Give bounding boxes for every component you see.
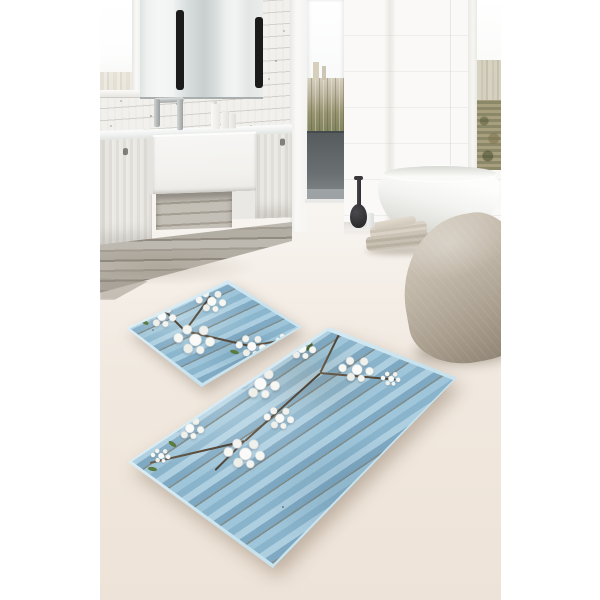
balcony-railing-panel [307, 131, 344, 191]
city-tower [322, 66, 326, 80]
blossom-cluster [334, 352, 375, 384]
blossom-cluster [142, 301, 178, 329]
far-window-towers [477, 60, 501, 102]
balcony-railing-base [307, 189, 344, 199]
blossom-cluster [170, 413, 206, 441]
toiletry-bottle [211, 103, 220, 129]
city-tower [313, 62, 319, 80]
blossom-cluster [138, 288, 161, 306]
blossom-cluster [148, 446, 171, 464]
bath-mat-large [128, 327, 457, 568]
toiletry-bottle [221, 111, 229, 128]
cabinet-handle [123, 148, 128, 155]
small-bottle [367, 213, 374, 228]
floor-vase [350, 204, 367, 228]
cabinet-handle [280, 139, 285, 146]
plank-knots [282, 506, 284, 508]
bathroom-photo [100, 0, 501, 600]
floor-vase-lip [354, 176, 363, 180]
wall-seam [450, 0, 451, 176]
vanity-niche-panel [232, 191, 255, 220]
page: { "scene": { "kind": "product photograph… [0, 0, 600, 600]
balcony-cityscape [307, 78, 344, 131]
blossom-cluster [260, 403, 296, 431]
blossom-cluster [219, 433, 268, 471]
toiletry-pump [214, 100, 217, 104]
toiletry-bottle [229, 113, 236, 128]
blossom-cluster [378, 369, 401, 387]
faucet-leg [177, 99, 183, 130]
vanity-niche [156, 191, 232, 230]
mat-print-large [132, 331, 453, 564]
leaf [148, 466, 158, 472]
farmhouse-sink [153, 132, 256, 195]
blossom-cluster [234, 363, 283, 401]
faucet-leg [154, 99, 160, 127]
bathtub-rim [384, 166, 496, 181]
door-threshold [305, 199, 346, 203]
far-window-cityscape [477, 100, 501, 170]
vanity-cabinet-right [255, 133, 292, 218]
